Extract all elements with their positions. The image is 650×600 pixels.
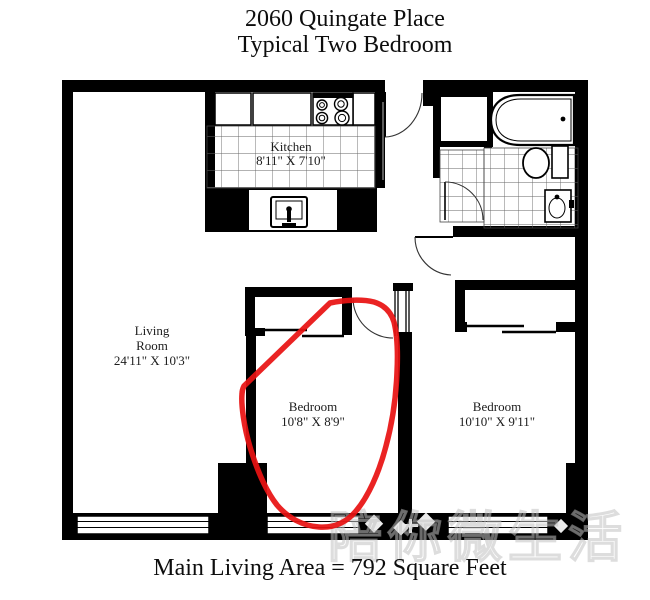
living-room-window — [77, 516, 209, 534]
entry-door-swing-arc — [385, 93, 422, 137]
living-room-label-line2: Room — [136, 338, 168, 353]
bedroom1-door — [353, 288, 409, 338]
living-room-dims: 24'11" X 10'3" — [114, 353, 190, 368]
kitchen-sink-icon — [271, 197, 307, 227]
entry-closet — [438, 94, 490, 144]
hall-door — [415, 237, 453, 275]
bedroom2-label: Bedroom — [473, 399, 521, 414]
footer-area-text: Main Living Area = 792 Square Feet — [10, 555, 650, 582]
bedroom1-label: Bedroom — [289, 399, 337, 414]
bathtub-icon — [491, 95, 574, 145]
bathroom-sink-icon — [545, 190, 574, 222]
entry-area — [385, 92, 490, 144]
kitchen-label: Kitchen — [270, 139, 312, 154]
kitchen-dims: 8'11" X 7'10" — [256, 153, 326, 168]
living-room-label-line1: Living — [135, 323, 170, 338]
bedroom1-dims: 10'8" X 8'9" — [281, 414, 345, 429]
stove-icon — [313, 93, 353, 125]
floorplan-svg: Kitchen 8'11" X 7'10" Living Room 24'11"… — [0, 0, 650, 600]
bedroom2-dims: 10'10" X 9'11" — [459, 414, 535, 429]
hall-door-swing-arc — [415, 237, 451, 275]
